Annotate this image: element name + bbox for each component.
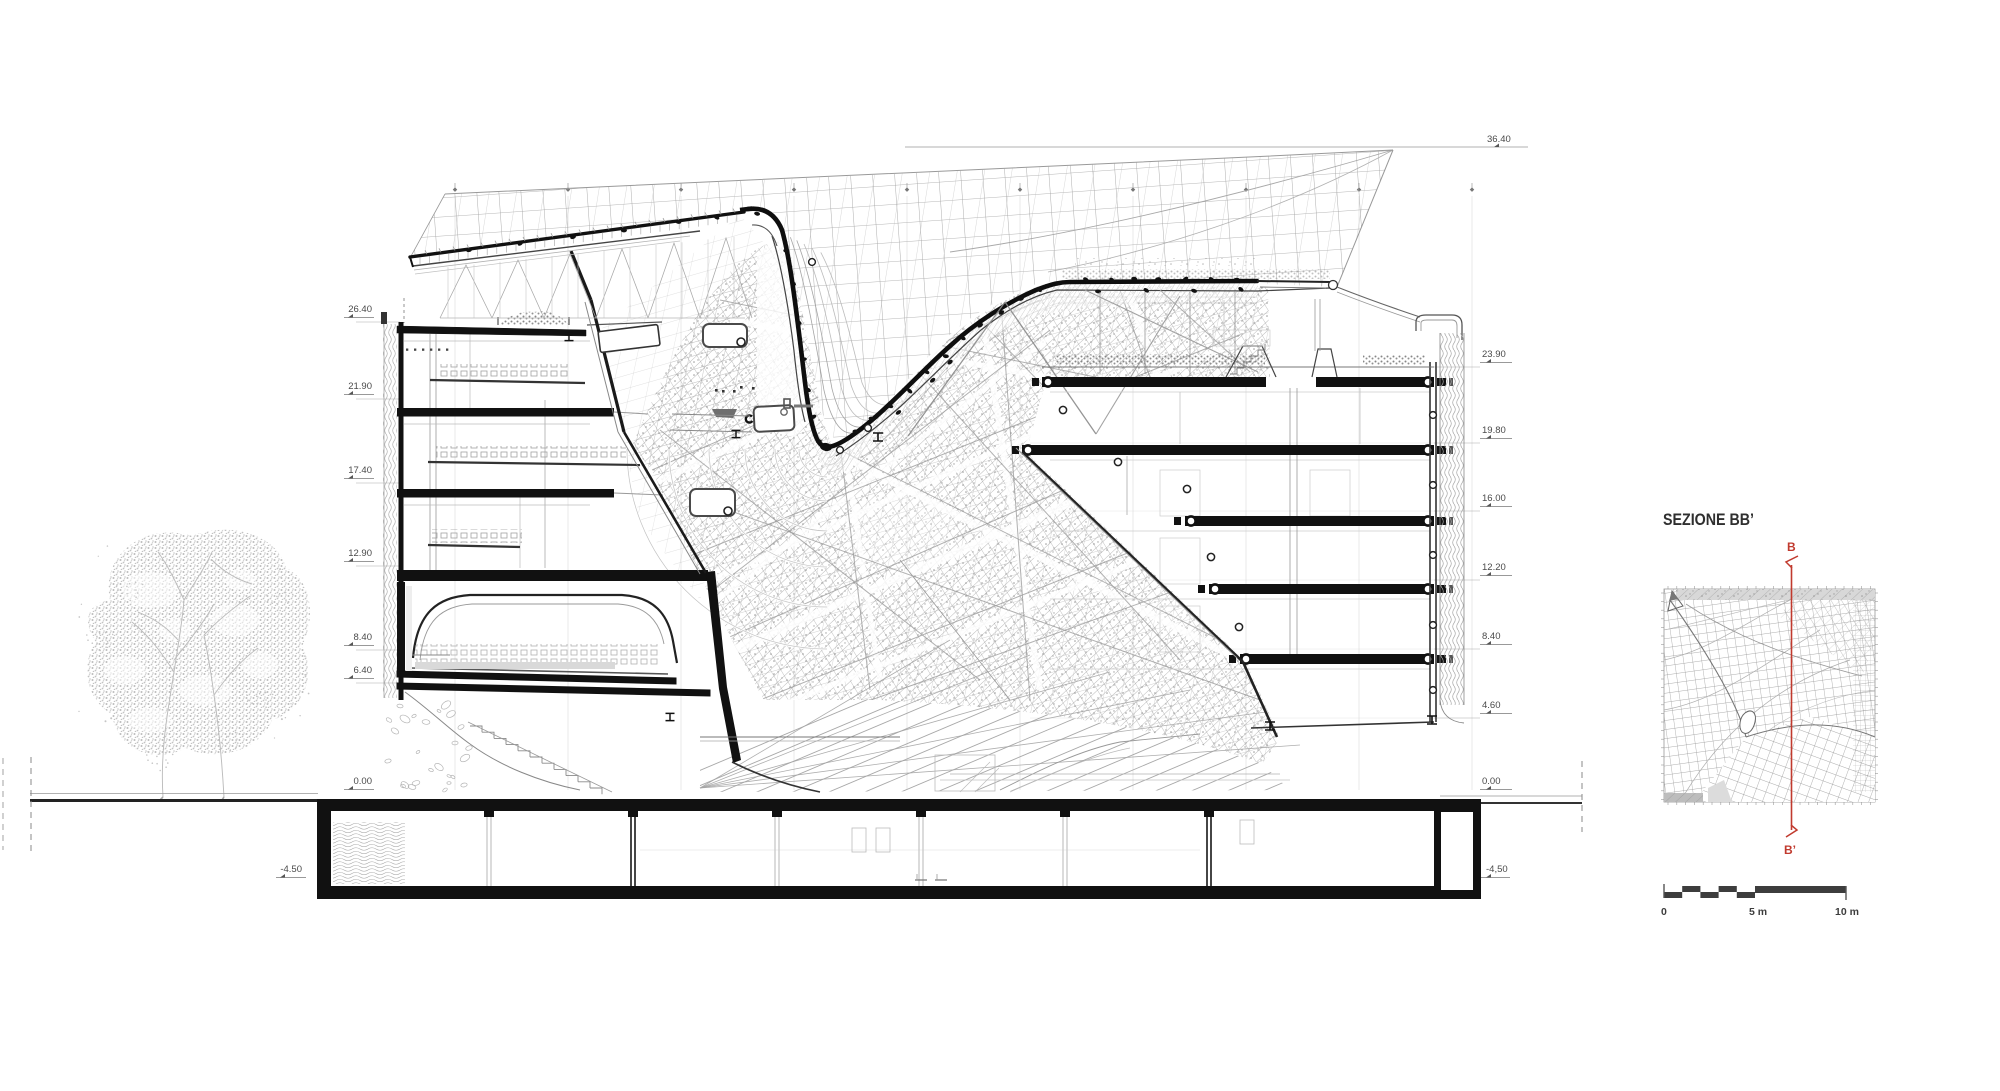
svg-text:0.00: 0.00 [354, 776, 373, 787]
svg-text:-4.50: -4.50 [280, 864, 302, 875]
svg-text:16.00: 16.00 [1482, 493, 1506, 504]
svg-text:10 m: 10 m [1835, 906, 1859, 918]
svg-text:6.40: 6.40 [354, 665, 373, 676]
svg-text:SEZIONE BB’: SEZIONE BB’ [1663, 511, 1754, 529]
svg-text:12.20: 12.20 [1482, 562, 1506, 573]
svg-text:8.40: 8.40 [1482, 631, 1501, 642]
svg-text:-4,50: -4,50 [1486, 864, 1508, 875]
svg-text:0.00: 0.00 [1482, 776, 1501, 787]
svg-text:5 m: 5 m [1749, 906, 1767, 918]
svg-text:12.90: 12.90 [348, 548, 372, 559]
svg-text:B’: B’ [1784, 843, 1796, 857]
svg-text:36.40: 36.40 [1487, 134, 1511, 145]
svg-text:19.80: 19.80 [1482, 425, 1506, 436]
svg-text:26.40: 26.40 [348, 304, 372, 315]
svg-text:0: 0 [1661, 906, 1667, 918]
svg-text:8.40: 8.40 [354, 632, 373, 643]
svg-text:4.60: 4.60 [1482, 700, 1501, 711]
svg-text:17.40: 17.40 [348, 465, 372, 476]
svg-text:B: B [1787, 540, 1796, 554]
svg-text:21.90: 21.90 [348, 381, 372, 392]
svg-text:23.90: 23.90 [1482, 349, 1506, 360]
